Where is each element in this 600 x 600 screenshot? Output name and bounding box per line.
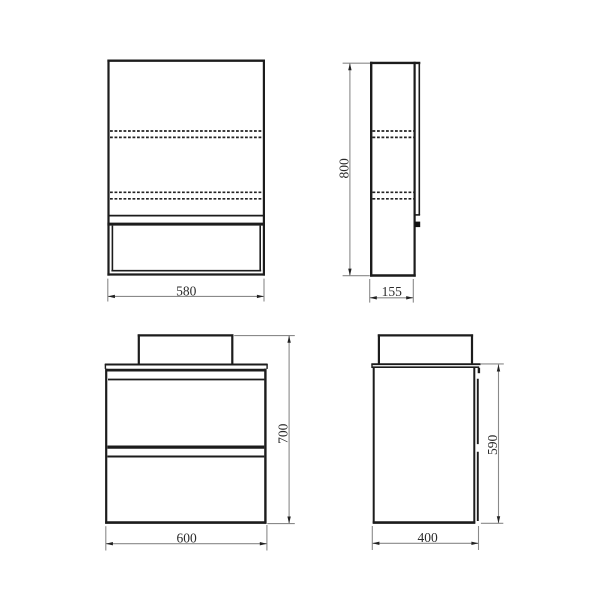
svg-text:600: 600 [176, 530, 197, 545]
svg-text:155: 155 [382, 284, 403, 299]
svg-text:590: 590 [485, 435, 500, 456]
svg-text:700: 700 [276, 423, 291, 444]
svg-text:580: 580 [176, 283, 197, 298]
svg-text:800: 800 [336, 158, 351, 179]
svg-text:400: 400 [417, 530, 438, 545]
